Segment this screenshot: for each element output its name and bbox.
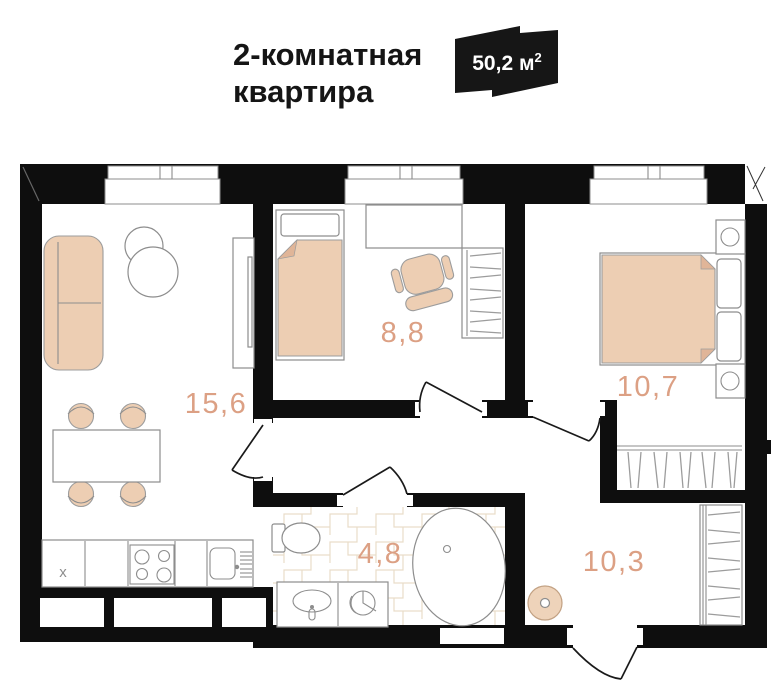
wall-niche bbox=[40, 598, 104, 627]
room-label-hallway: 10,3 bbox=[583, 546, 645, 578]
pillow bbox=[281, 214, 339, 236]
double-bed bbox=[600, 253, 745, 365]
wardrobe-hallway bbox=[700, 505, 742, 625]
room-label-bedroom-main: 10,7 bbox=[617, 371, 679, 403]
wall-niche bbox=[222, 598, 266, 627]
sofa bbox=[44, 236, 103, 370]
dining-chair bbox=[68, 482, 94, 507]
tv bbox=[248, 257, 252, 347]
door-entrance bbox=[573, 647, 637, 679]
room-label-living-kitchen: 15,6 bbox=[185, 388, 247, 420]
floorplan-page: 2-комнатная квартира 50,2 м2 bbox=[0, 0, 780, 700]
window-living bbox=[105, 166, 220, 204]
wall-niche bbox=[440, 628, 504, 644]
tv-unit bbox=[233, 238, 254, 368]
apartment-title-line1: 2-комнатная bbox=[233, 36, 422, 73]
blanket bbox=[602, 255, 715, 363]
dining-set bbox=[53, 404, 160, 507]
area-badge: 50,2 м2 bbox=[451, 22, 563, 104]
side-table bbox=[128, 247, 178, 297]
room-bedroom-small: 8,8 bbox=[276, 205, 503, 360]
toilet bbox=[272, 523, 320, 553]
door-living bbox=[232, 425, 263, 478]
window-bedroom-small bbox=[345, 166, 463, 204]
dining-chair bbox=[120, 404, 146, 429]
office-chair bbox=[389, 249, 460, 314]
room-living-kitchen: x 15,6 bbox=[42, 227, 254, 587]
wardrobe-bedroom-small bbox=[462, 248, 503, 338]
area-badge-label: 50,2 м2 bbox=[472, 50, 541, 75]
door-bedroom-main bbox=[533, 417, 600, 441]
floor-plan-drawing: x 15,6 8,8 bbox=[0, 160, 780, 700]
room-bedroom-main: 10,7 bbox=[600, 220, 745, 488]
apartment-title-line2: квартира bbox=[233, 73, 422, 110]
pillow bbox=[717, 259, 741, 308]
room-hallway: 10,3 bbox=[528, 505, 742, 625]
door-bedroom-small bbox=[420, 382, 482, 412]
desk bbox=[366, 205, 462, 248]
vanity bbox=[277, 582, 388, 627]
single-bed bbox=[276, 210, 344, 360]
nightstand bbox=[716, 364, 745, 398]
nightstand bbox=[716, 220, 745, 254]
wardrobe-bedroom-main bbox=[617, 446, 742, 488]
stool bbox=[528, 586, 562, 620]
dining-chair bbox=[120, 482, 146, 507]
wall-niche bbox=[114, 598, 212, 627]
windows bbox=[105, 166, 707, 204]
apartment-title: 2-комнатная квартира bbox=[233, 36, 422, 110]
door-bathroom bbox=[343, 467, 407, 495]
dining-table bbox=[53, 430, 160, 482]
plan-header: 2-комнатная квартира 50,2 м2 bbox=[0, 0, 780, 140]
dining-chair bbox=[68, 404, 94, 429]
fridge-mark: x bbox=[59, 564, 67, 581]
room-label-bedroom-small: 8,8 bbox=[381, 317, 426, 349]
window-bedroom-main bbox=[590, 166, 707, 204]
pillow bbox=[717, 312, 741, 361]
kitchen-counter: x bbox=[42, 540, 253, 587]
room-label-bathroom: 4,8 bbox=[358, 538, 403, 570]
